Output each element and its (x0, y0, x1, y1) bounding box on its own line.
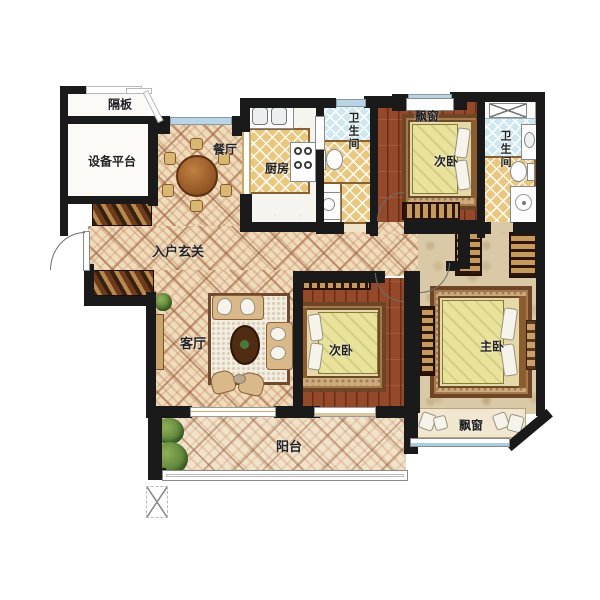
balcony-sliding-door (190, 407, 276, 417)
kitchen-opening-threshold (242, 132, 251, 194)
label-equipment-platform: 设备平台 (88, 156, 136, 169)
bay-window-bottom-glass (410, 438, 510, 447)
wall (60, 196, 156, 204)
kitchen-sink (271, 107, 287, 125)
wall (536, 92, 545, 416)
wall (293, 271, 385, 283)
wall (364, 96, 394, 108)
wall (293, 271, 303, 417)
bed-headboard (519, 296, 526, 388)
toilet-tank (527, 163, 535, 181)
stove-burner (294, 147, 302, 155)
label-dining: 餐厅 (213, 144, 237, 157)
wall (513, 222, 545, 234)
wall (146, 292, 156, 418)
dining-chair (220, 184, 232, 197)
dining-chair (162, 184, 174, 197)
bedside-shelf (526, 320, 536, 370)
toilet-bowl (326, 149, 343, 170)
label-kitchen: 厨房 (265, 163, 289, 176)
label-bay-window-top: 飘窗 (415, 111, 439, 124)
label-balcony: 阳台 (276, 440, 302, 454)
stove-burner (304, 147, 312, 155)
coffee-table-plant (240, 340, 249, 349)
wall (477, 222, 491, 234)
dining-table (176, 155, 218, 197)
kitchen-sink (252, 107, 268, 125)
master-side-cabinet (420, 306, 435, 376)
bath-window (336, 99, 366, 107)
label-bath-top: 卫生间 (344, 112, 358, 182)
stove-burner (304, 161, 312, 169)
bath-door-panel (315, 116, 325, 150)
wall (84, 296, 150, 306)
wall (60, 86, 68, 236)
wall (148, 116, 158, 206)
label-bath-right: 卫生间 (496, 130, 510, 194)
wall (316, 222, 344, 234)
label-living: 客厅 (180, 337, 206, 351)
dining-chair (164, 152, 176, 165)
drain-marker (146, 486, 168, 518)
master-wardrobe (509, 232, 537, 278)
label-bedroom-top: 次卧 (434, 156, 458, 169)
toilet-bowl (510, 161, 527, 182)
label-bedroom-middle: 次卧 (329, 345, 353, 358)
dining-chair (190, 138, 203, 150)
laundry-nook-tile (340, 182, 372, 224)
stove-burner (294, 161, 302, 169)
wall (240, 222, 320, 232)
floor-plan: 隔板 设备平台 餐厅 厨房 卫生间 飘窗 次卧 卫生间 入户玄关 客厅 次卧 主… (0, 0, 600, 600)
label-partition: 隔板 (108, 99, 132, 112)
label-master-bedroom: 主卧 (480, 341, 504, 354)
duct-shaft-icon (489, 103, 527, 118)
dining-window (170, 117, 232, 125)
wall (240, 98, 318, 108)
label-bay-window-bottom: 飘窗 (459, 420, 483, 433)
bedroom-middle-window (314, 407, 376, 417)
shoe-cabinet (92, 270, 154, 296)
wall (404, 271, 420, 413)
wall (60, 116, 152, 124)
label-foyer: 入户玄关 (152, 245, 204, 259)
dining-chair (190, 200, 203, 212)
vanity-basin (524, 132, 535, 148)
shower-dot (522, 201, 526, 205)
pouf (233, 374, 246, 384)
plant (155, 293, 172, 311)
entry-door-arc (50, 232, 85, 270)
bath-door-gap (344, 224, 366, 232)
balcony-railing (162, 470, 408, 481)
wall (60, 86, 86, 94)
wardrobe (402, 202, 460, 220)
wall (477, 92, 485, 238)
bedroom-top-door-gap (378, 222, 404, 234)
wall (366, 222, 378, 234)
